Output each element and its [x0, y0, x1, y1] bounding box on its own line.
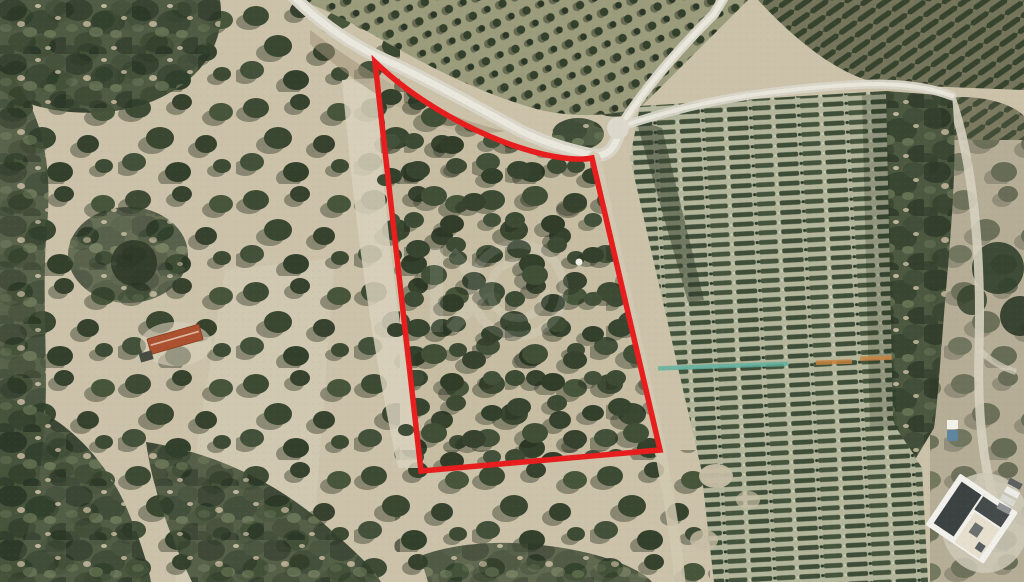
- grain-overlay: [0, 0, 1024, 582]
- aerial-photo-canvas: [0, 0, 1024, 582]
- satellite-view: [0, 0, 1024, 582]
